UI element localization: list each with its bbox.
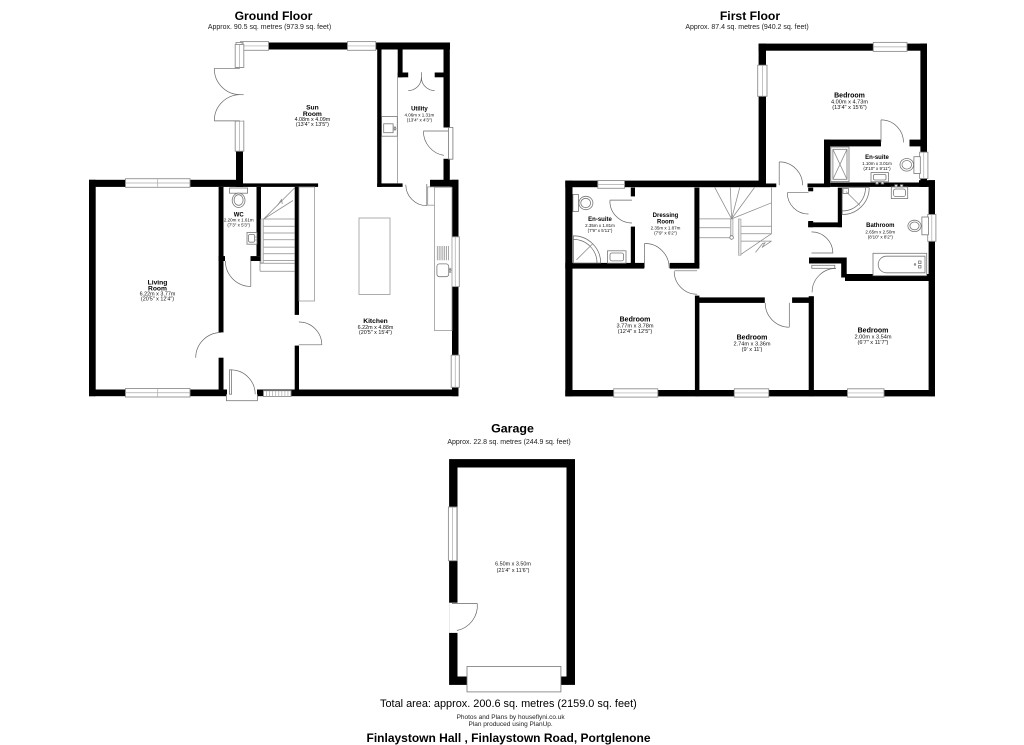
svg-text:Plan produced using PlanUp.: Plan produced using PlanUp. — [468, 721, 552, 728]
svg-text:Total area: approx. 200.6 sq.: Total area: approx. 200.6 sq. metres (21… — [380, 698, 637, 710]
svg-text:(7'9" x 5'11"): (7'9" x 5'11") — [588, 228, 613, 233]
svg-text:(3'10" x 9'11"): (3'10" x 9'11") — [863, 166, 891, 171]
svg-text:(6'7" x 11'7"): (6'7" x 11'7") — [858, 340, 889, 346]
svg-text:Bathroom: Bathroom — [866, 223, 894, 229]
svg-text:6.50m x 3.50m: 6.50m x 3.50m — [495, 562, 531, 568]
svg-text:(20'5" x 12'4"): (20'5" x 12'4") — [141, 297, 174, 303]
svg-text:Dressing: Dressing — [653, 213, 679, 219]
svg-text:First Floor: First Floor — [720, 9, 781, 23]
svg-text:Bedroom: Bedroom — [834, 92, 865, 99]
svg-text:(9' x 11'): (9' x 11') — [742, 347, 763, 353]
svg-text:Ground Floor: Ground Floor — [235, 9, 313, 23]
svg-text:Bedroom: Bedroom — [737, 334, 768, 341]
svg-text:Approx. 87.4 sq. metres (940.2: Approx. 87.4 sq. metres (940.2 sq. feet) — [685, 24, 808, 31]
svg-text:(21'4" x 11'6"): (21'4" x 11'6") — [497, 568, 530, 574]
svg-text:Kitchen: Kitchen — [363, 318, 388, 325]
svg-text:(20'5" x 15'4"): (20'5" x 15'4") — [359, 330, 392, 336]
svg-text:(12'4" x 12'5"): (12'4" x 12'5") — [618, 329, 653, 335]
svg-text:(7'3" x 5'3"): (7'3" x 5'3") — [227, 222, 250, 227]
svg-text:(13'4" x 15'6"): (13'4" x 15'6") — [832, 105, 867, 111]
svg-text:(8'10" x 8'2"): (8'10" x 8'2") — [868, 234, 894, 239]
svg-text:Room: Room — [657, 219, 674, 225]
svg-text:(13'4" x 4'3"): (13'4" x 4'3") — [407, 117, 433, 122]
svg-text:(13'4" x 13'5"): (13'4" x 13'5") — [296, 122, 329, 128]
svg-text:Bedroom: Bedroom — [858, 327, 889, 334]
svg-text:(7'9" x 6'2"): (7'9" x 6'2") — [654, 231, 677, 236]
svg-text:Garage: Garage — [491, 421, 534, 435]
svg-text:Approx. 22.8 sq. metres (244.9: Approx. 22.8 sq. metres (244.9 sq. feet) — [447, 439, 570, 446]
svg-text:Bedroom: Bedroom — [620, 316, 651, 323]
svg-text:Approx. 90.5 sq. metres (973.9: Approx. 90.5 sq. metres (973.9 sq. feet) — [208, 24, 331, 31]
svg-text:Finlaystown Hall , Finlaystown: Finlaystown Hall , Finlaystown Road, Por… — [366, 731, 650, 745]
